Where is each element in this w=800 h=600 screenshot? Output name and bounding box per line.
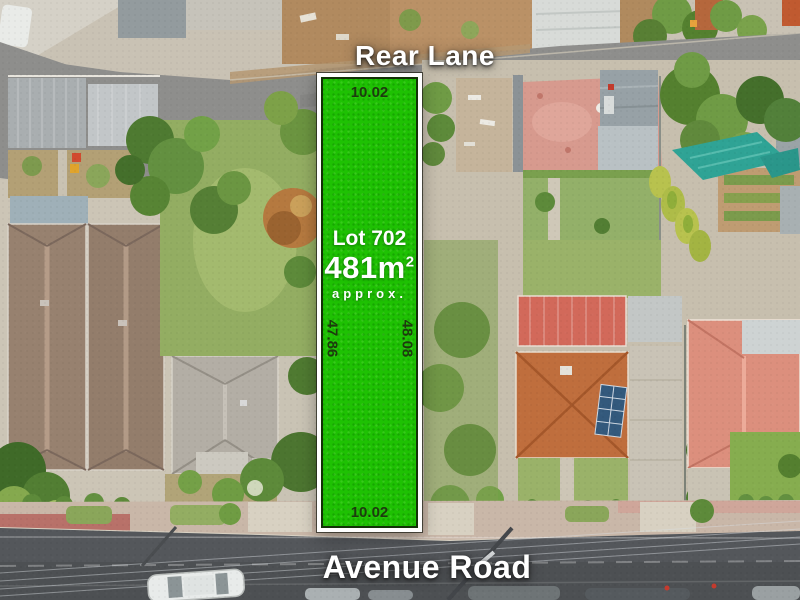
lot-dim-left: 47.86 (324, 313, 341, 365)
aerial-photo: Rear Lane 10.02 47.86 48.08 Lot 702 481m… (0, 0, 800, 600)
lot-area-value: 481m (324, 250, 405, 285)
brown-roof-duplex (8, 224, 164, 470)
lot-area: 481m2 (321, 250, 418, 286)
lot-info: Lot 702 481m2 approx. (321, 227, 418, 303)
solar-panels (595, 384, 627, 437)
lot-dim-top: 10.02 (321, 84, 418, 101)
lot-name: Lot 702 (321, 227, 418, 250)
road-label-rear-lane: Rear Lane (355, 40, 495, 72)
lot-area-superscript: 2 (406, 254, 415, 271)
lot-area-qualifier: approx. (321, 286, 418, 303)
lot-dim-bottom: 10.02 (321, 504, 418, 521)
lot-overlay: 10.02 47.86 48.08 Lot 702 481m2 approx. … (317, 73, 422, 532)
red-corrugated-roof (518, 296, 682, 346)
lot-dim-right: 48.08 (399, 313, 416, 365)
right-shed (598, 70, 658, 170)
road-label-avenue-road: Avenue Road (323, 549, 532, 586)
